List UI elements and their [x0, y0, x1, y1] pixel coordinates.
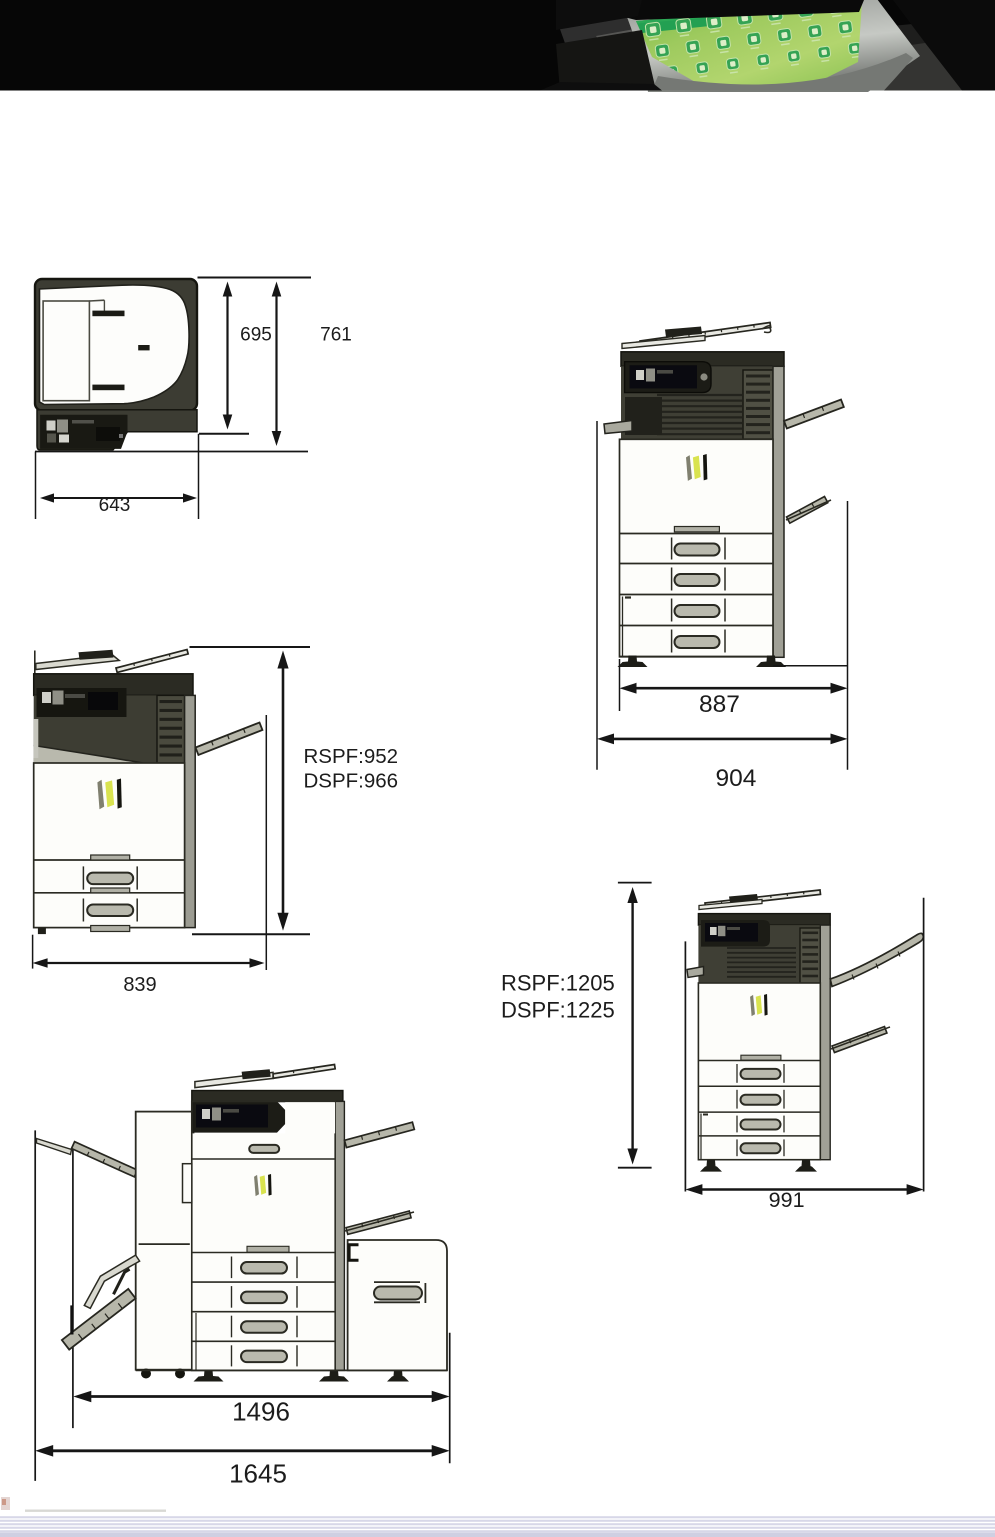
svg-text:904: 904	[716, 765, 757, 792]
svg-text:761: 761	[320, 325, 352, 346]
svg-text:DSPF:966: DSPF:966	[304, 770, 399, 793]
svg-text:839: 839	[123, 974, 156, 996]
svg-text:DSPF:1225: DSPF:1225	[501, 998, 615, 1023]
svg-text:643: 643	[99, 495, 131, 516]
svg-text:RSPF:1205: RSPF:1205	[501, 971, 615, 996]
svg-text:1645: 1645	[229, 1459, 287, 1489]
svg-text:1496: 1496	[232, 1397, 290, 1427]
svg-text:695: 695	[240, 325, 272, 346]
svg-text:RSPF:952: RSPF:952	[304, 745, 399, 768]
svg-text:887: 887	[699, 691, 740, 718]
svg-text:991: 991	[769, 1188, 805, 1212]
